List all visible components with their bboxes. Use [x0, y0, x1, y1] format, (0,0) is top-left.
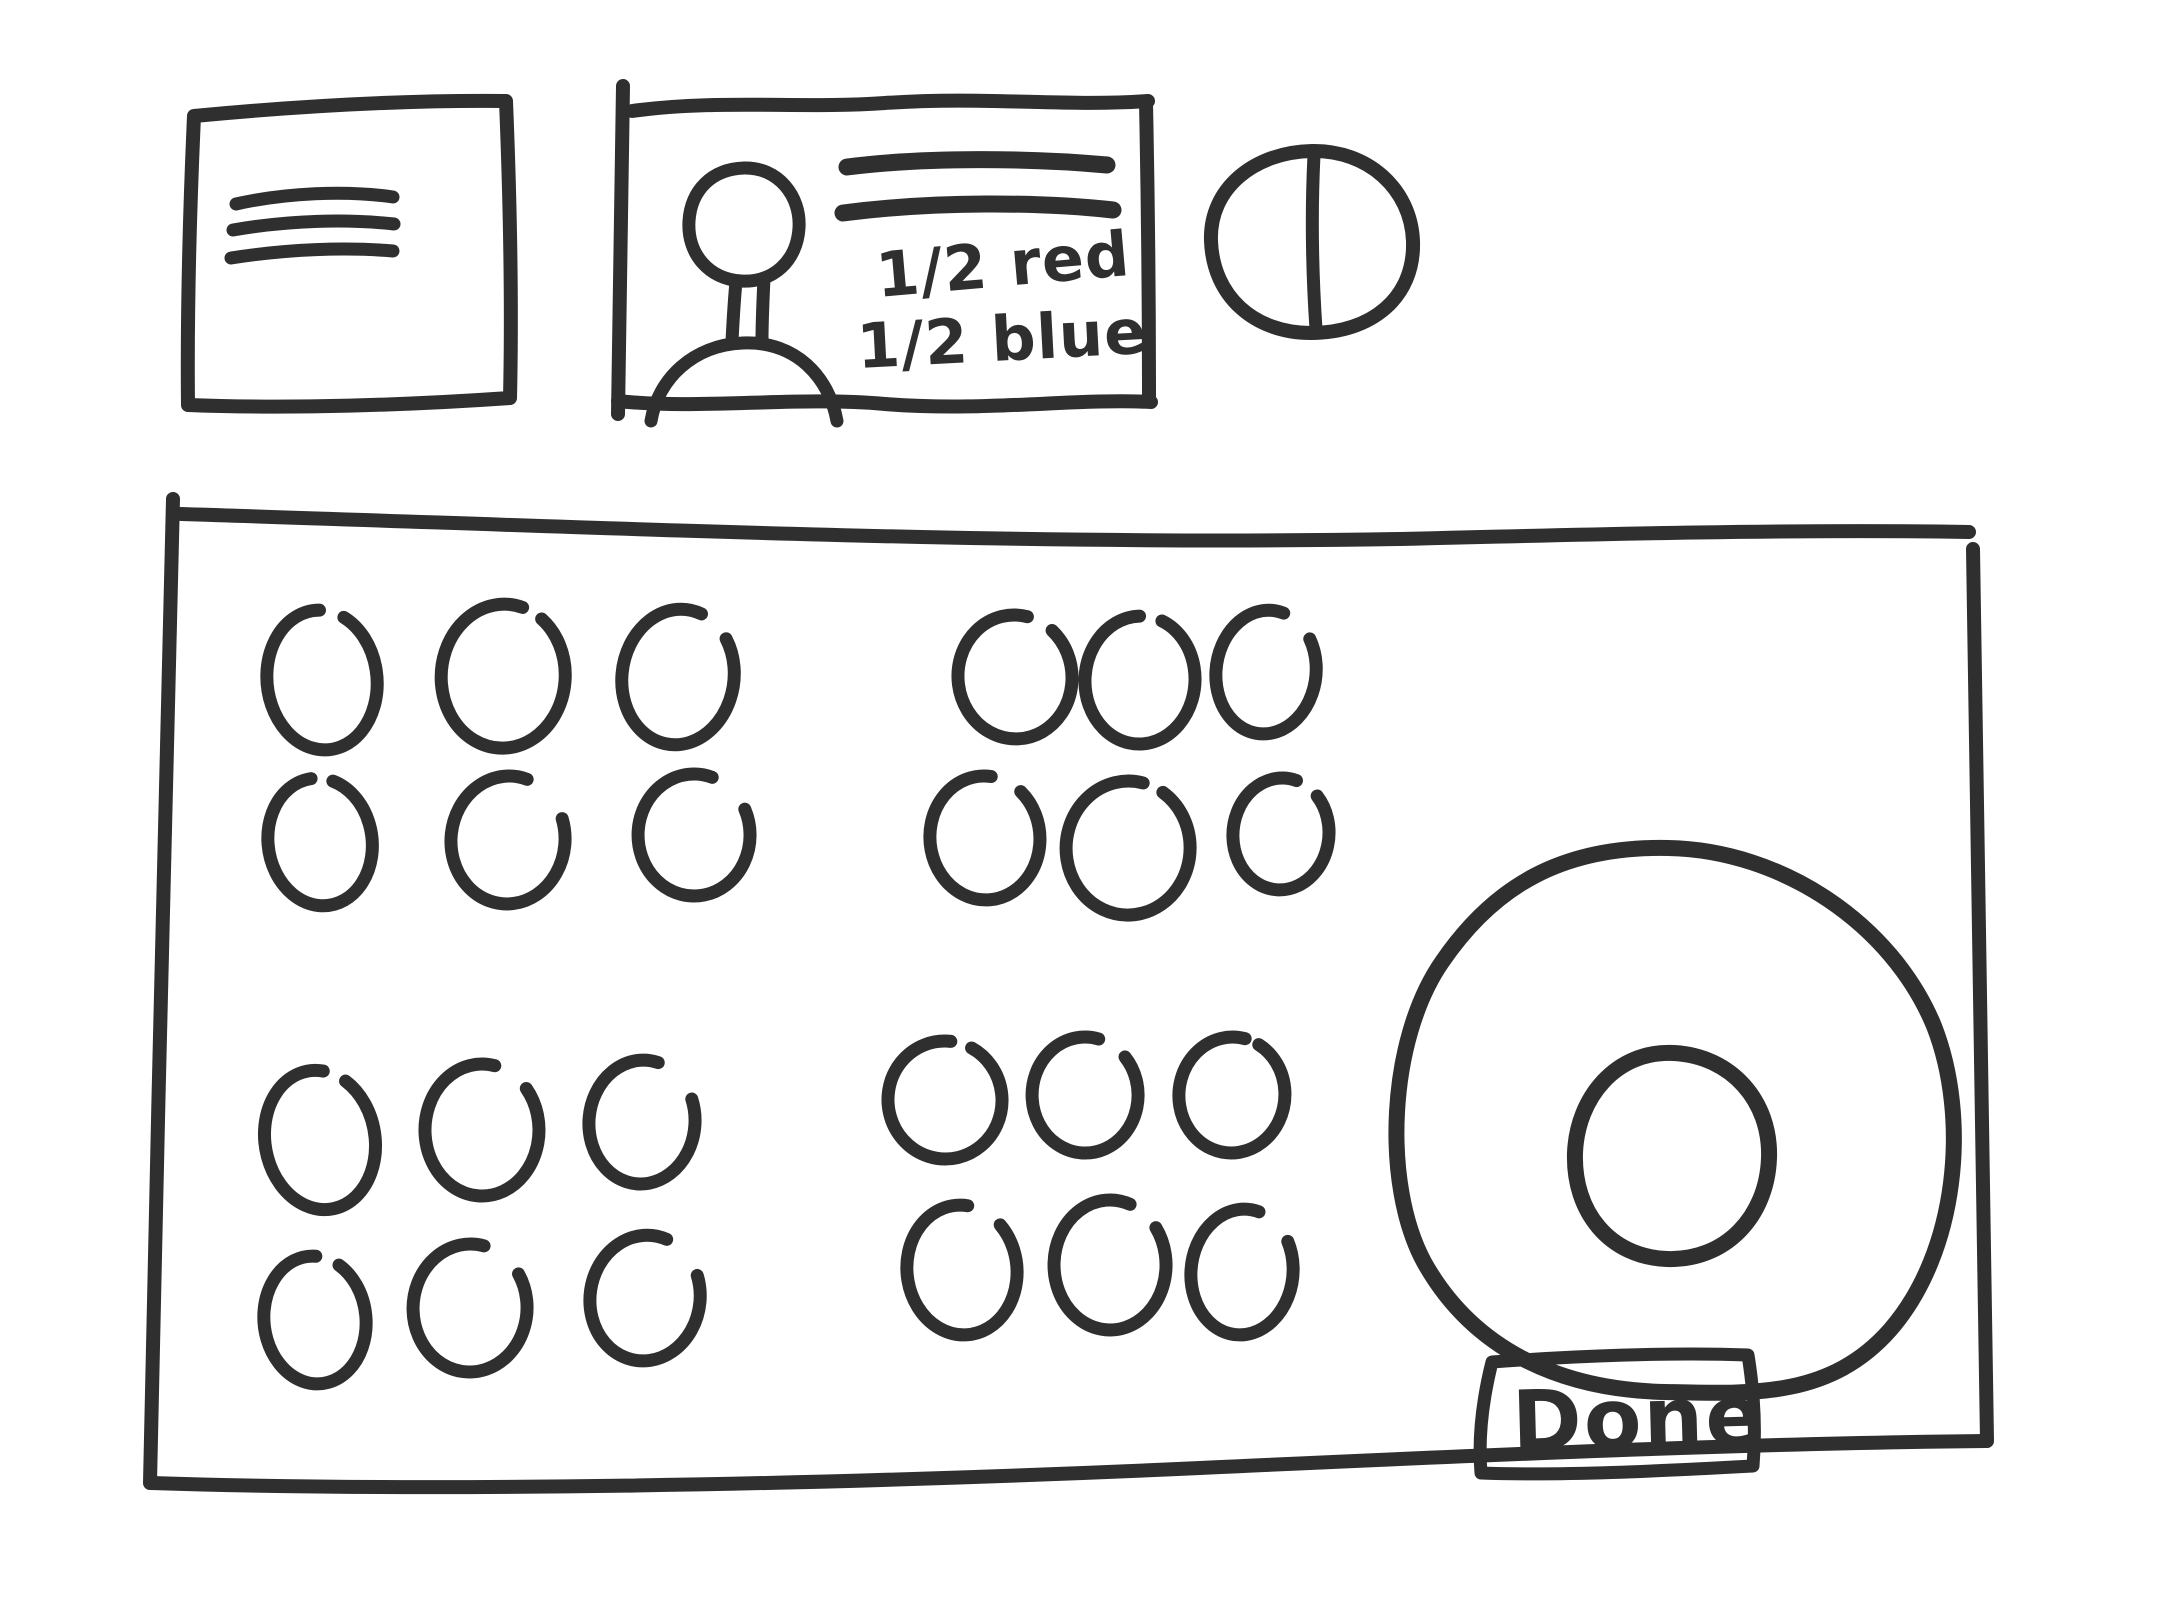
bead[interactable] [1082, 613, 1199, 746]
card-title-line-1 [847, 160, 1107, 167]
bead[interactable] [411, 1242, 529, 1374]
split-circle-icon[interactable] [1211, 151, 1413, 333]
bead[interactable] [260, 605, 384, 756]
bead[interactable] [260, 771, 381, 912]
bead[interactable] [900, 1200, 1023, 1341]
card-title-line-2 [843, 204, 1113, 213]
bead[interactable] [613, 602, 743, 752]
bead[interactable] [425, 1064, 539, 1196]
player-card: 1/2 red 1/2 blue [618, 86, 1151, 421]
bead[interactable] [1064, 779, 1193, 917]
bead[interactable] [438, 601, 569, 751]
bead[interactable] [582, 1228, 708, 1368]
game-board: Done [150, 499, 1987, 1487]
person-icon [651, 168, 837, 421]
bead[interactable] [254, 1061, 387, 1218]
hamburger-menu-icon [231, 193, 394, 258]
donut-inner-hole [1575, 1053, 1769, 1259]
bead[interactable] [1175, 1033, 1289, 1156]
bead-cluster-top-left [260, 601, 750, 913]
bead[interactable] [1228, 774, 1333, 894]
bead[interactable] [1209, 604, 1323, 739]
bead-clusters [254, 601, 1334, 1389]
bead[interactable] [584, 1056, 700, 1189]
card-note-line-2: 1/2 blue [855, 295, 1149, 383]
sketch-canvas: 1/2 red 1/2 blue Done [0, 0, 2160, 1620]
bead-cluster-bottom-left [254, 1056, 709, 1389]
bead[interactable] [1185, 1204, 1300, 1340]
menu-button[interactable] [188, 101, 511, 407]
donut-outer-ring[interactable] [1396, 848, 1953, 1393]
donut-target-icon[interactable] [1396, 848, 1953, 1393]
bead[interactable] [953, 610, 1077, 743]
bead-cluster-top-right [926, 604, 1334, 917]
bead[interactable] [883, 1036, 1007, 1163]
bead[interactable] [638, 774, 750, 896]
bead-cluster-bottom-middle [883, 1033, 1299, 1340]
bead[interactable] [1032, 1037, 1138, 1153]
bead[interactable] [926, 772, 1044, 903]
bead[interactable] [1054, 1200, 1166, 1330]
done-button-label: Done [1511, 1366, 1766, 1471]
bead[interactable] [446, 771, 571, 908]
bead[interactable] [258, 1251, 373, 1389]
done-button[interactable]: Done [1480, 1354, 1765, 1474]
